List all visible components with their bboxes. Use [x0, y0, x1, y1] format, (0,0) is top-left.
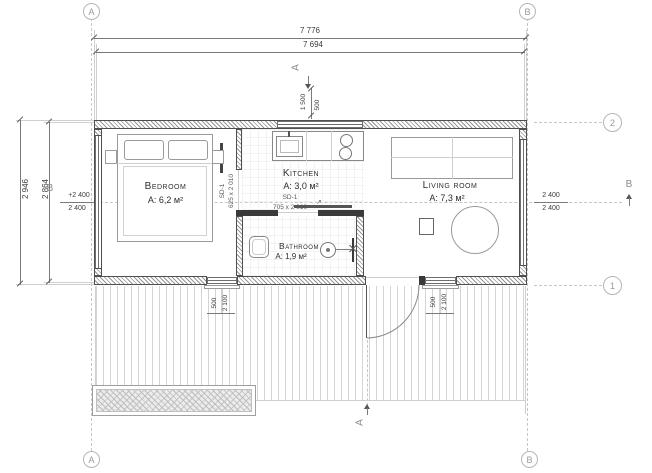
kitchen-label: Kitchen	[253, 168, 349, 180]
grid-bubble-1: 1	[603, 276, 622, 295]
living-room-label: Living room	[402, 180, 498, 192]
grid-bubble-b-bottom: B	[521, 451, 538, 468]
dim-window2-width: 500	[429, 267, 439, 337]
door2-size: 705 x 2 010	[262, 204, 318, 212]
door2-leader-arrow: ↗	[314, 199, 324, 207]
grid-bubble-2: 2	[603, 113, 622, 132]
door2-code: SD-1	[270, 194, 310, 202]
dim-window2-height: 2 100	[440, 267, 450, 337]
bedroom-area: A: 6,2 м²	[118, 195, 213, 206]
living-room-area: A: 7,3 м²	[399, 193, 495, 204]
bedroom-label: Bedroom	[118, 181, 213, 193]
grid-bubble-a-bottom: A	[83, 451, 100, 468]
kitchen-area: A: 3,0 м²	[253, 181, 349, 192]
dim-window1-width: 500	[210, 268, 220, 338]
door1-size: 625 x 2 010	[228, 156, 236, 226]
entry-door-swing-arc	[367, 285, 419, 338]
floor-plan-canvas: 7 776 7 694 2 946 2 864 +2 400 2 400 2 4…	[0, 0, 652, 473]
bathroom-area: A: 1,9 м²	[243, 251, 339, 262]
door-swing-layer	[0, 0, 652, 473]
door1-code: SD-1	[219, 156, 227, 226]
grid-bubble-b-top: B	[519, 3, 536, 20]
dim-window1-height: 2 100	[221, 268, 231, 338]
grid-bubble-a-top: A	[83, 3, 100, 20]
